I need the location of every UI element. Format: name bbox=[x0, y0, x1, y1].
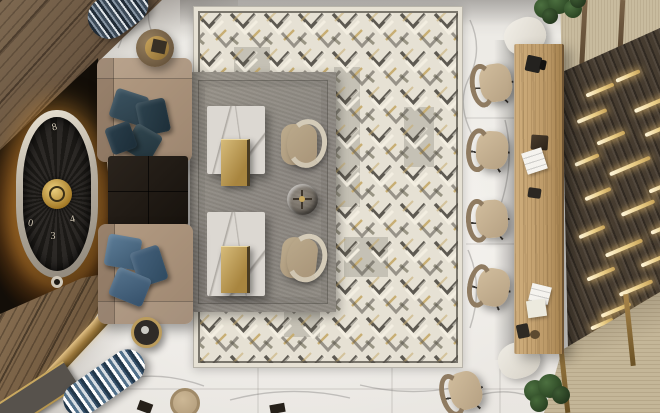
brass-tray-table-2 bbox=[221, 246, 250, 293]
tray-item bbox=[151, 39, 167, 55]
clock-center-dial bbox=[42, 179, 72, 209]
lounge-chair-bottom bbox=[279, 233, 326, 284]
lounge-chair-top bbox=[281, 121, 323, 168]
plant-leaf bbox=[542, 8, 558, 24]
floor-object bbox=[269, 403, 285, 413]
desk-device bbox=[527, 187, 541, 199]
round-side-table bbox=[131, 317, 162, 348]
clock-numeral: 3 bbox=[50, 231, 55, 242]
potted-plant-top bbox=[534, 0, 588, 30]
desk-paper bbox=[526, 299, 547, 318]
task-chair-4 bbox=[465, 261, 517, 318]
desk-device bbox=[516, 323, 531, 339]
leather-ottoman bbox=[108, 156, 188, 226]
wall-clock: 8 0 3 4 bbox=[16, 110, 98, 278]
brass-tray-table-1 bbox=[221, 139, 250, 186]
drum-side-table bbox=[136, 29, 174, 67]
potted-plant-bottom bbox=[522, 372, 572, 413]
task-chair-2 bbox=[466, 126, 513, 179]
plant-leaf bbox=[530, 394, 548, 412]
desk-bowl bbox=[530, 330, 540, 339]
task-chair-1 bbox=[469, 57, 520, 113]
interior-render: 8 0 3 4 bbox=[0, 0, 660, 413]
table-center-detail bbox=[299, 196, 305, 202]
task-chair-3 bbox=[466, 195, 513, 248]
stool-partial bbox=[170, 388, 200, 413]
glass-side-table bbox=[287, 184, 318, 215]
plant-leaf bbox=[552, 386, 570, 404]
clock-knob bbox=[51, 276, 63, 288]
